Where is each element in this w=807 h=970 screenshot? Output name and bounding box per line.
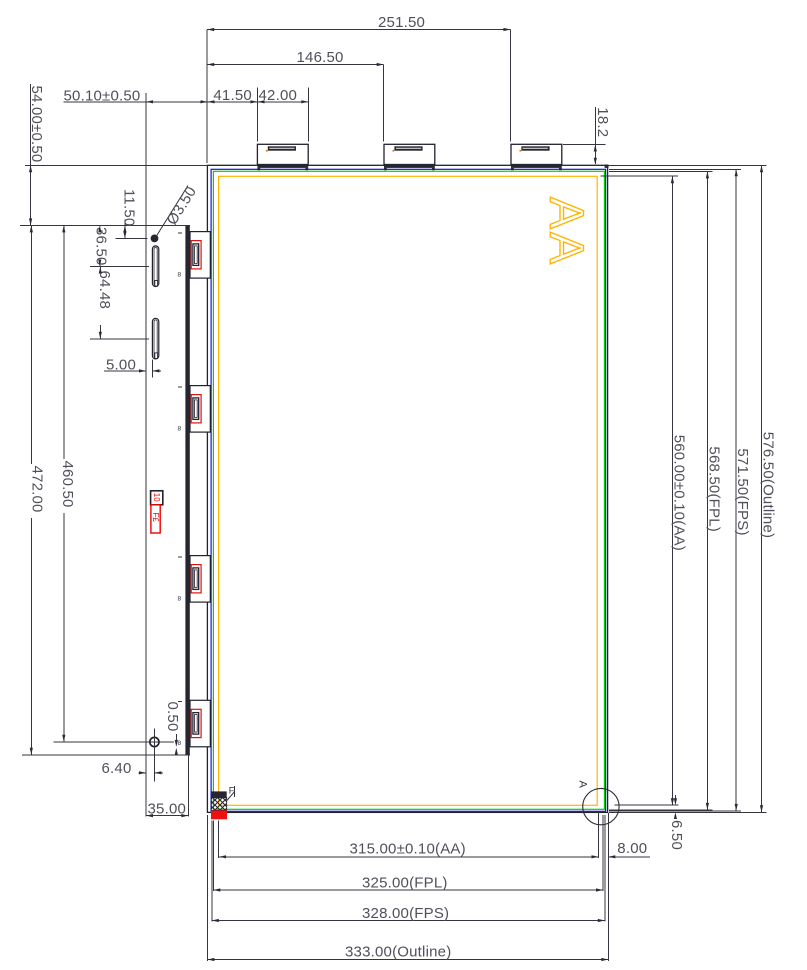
svg-text:18.2: 18.2: [594, 107, 611, 137]
svg-text:6.50: 6.50: [668, 820, 685, 850]
svg-text:F: F: [229, 786, 235, 796]
svg-text:64.48: 64.48: [96, 271, 113, 310]
svg-text:8: 8: [178, 426, 182, 433]
svg-text:8.00: 8.00: [617, 840, 647, 857]
svg-text:42.00: 42.00: [259, 87, 298, 104]
svg-text:6.40: 6.40: [102, 760, 132, 777]
svg-text:8: 8: [178, 740, 182, 747]
svg-text:A: A: [577, 781, 589, 789]
svg-text:10: 10: [152, 493, 161, 502]
svg-text:0.50: 0.50: [164, 702, 181, 732]
svg-text:325.00(FPL): 325.00(FPL): [362, 875, 448, 892]
svg-text:AA: AA: [540, 197, 593, 267]
svg-text:8: 8: [178, 272, 182, 279]
svg-text:41.50: 41.50: [213, 87, 252, 104]
svg-text:472.00: 472.00: [29, 466, 46, 513]
svg-text:251.50: 251.50: [378, 14, 425, 31]
svg-text:568.50(FPL): 568.50(FPL): [705, 446, 722, 532]
svg-text:315.00±0.10(AA): 315.00±0.10(AA): [350, 841, 466, 858]
svg-text:F£: F£: [151, 513, 160, 523]
svg-text:35.00: 35.00: [148, 801, 187, 818]
svg-text:50.10±0.50: 50.10±0.50: [64, 87, 141, 104]
svg-text:8: 8: [178, 596, 182, 603]
svg-text:333.00(Outline): 333.00(Outline): [345, 944, 451, 961]
svg-text:576.50(Outline): 576.50(Outline): [759, 432, 776, 538]
svg-text:146.50: 146.50: [297, 49, 344, 66]
svg-text:571.50(FPS): 571.50(FPS): [734, 448, 751, 535]
svg-text:54.00±0.50: 54.00±0.50: [28, 86, 45, 163]
svg-text:460.50: 460.50: [59, 461, 76, 508]
svg-text:11.50: 11.50: [121, 189, 138, 226]
svg-text:328.00(FPS): 328.00(FPS): [362, 905, 449, 922]
svg-text:560.00±0.10(AA): 560.00±0.10(AA): [670, 435, 687, 551]
